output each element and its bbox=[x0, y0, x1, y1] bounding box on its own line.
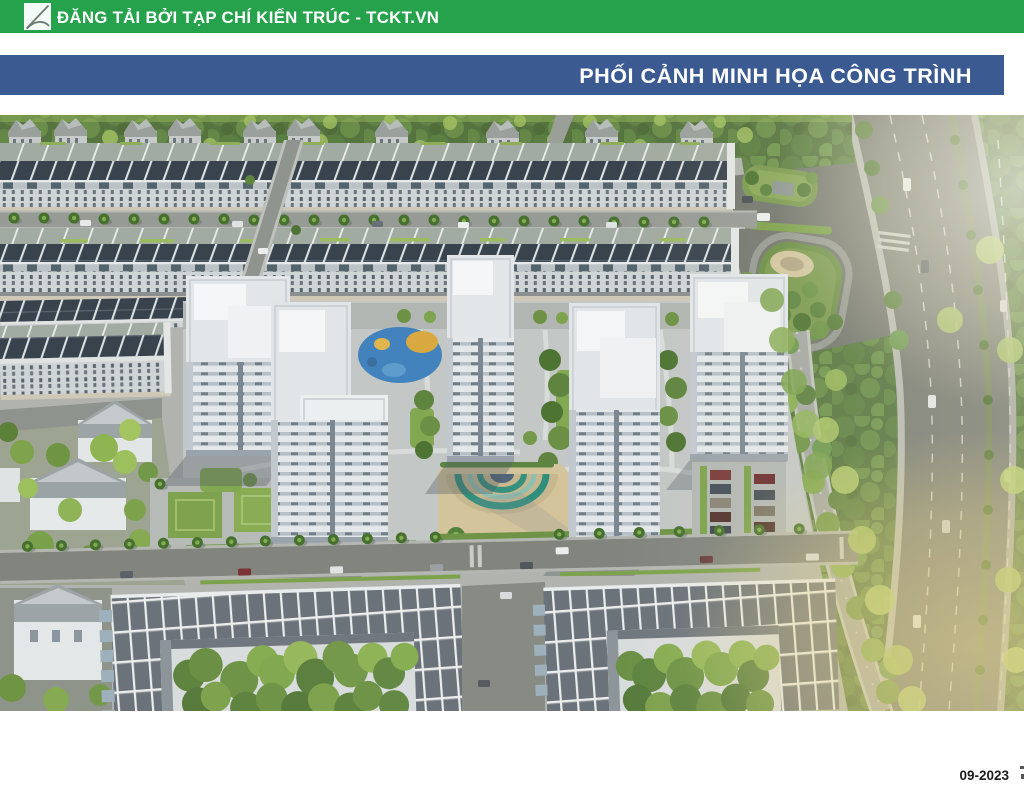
svg-text:ĐĂNG TẢI BỞI TẠP CHÍ KIẾN TRÚC: ĐĂNG TẢI BỞI TẠP CHÍ KIẾN TRÚC - TCKT.VN bbox=[57, 8, 439, 27]
svg-text:09-2023: 09-2023 bbox=[959, 768, 1009, 783]
svg-text:PHỐI CẢNH MINH HỌA CÔNG TRÌNH: PHỐI CẢNH MINH HỌA CÔNG TRÌNH bbox=[579, 62, 972, 88]
